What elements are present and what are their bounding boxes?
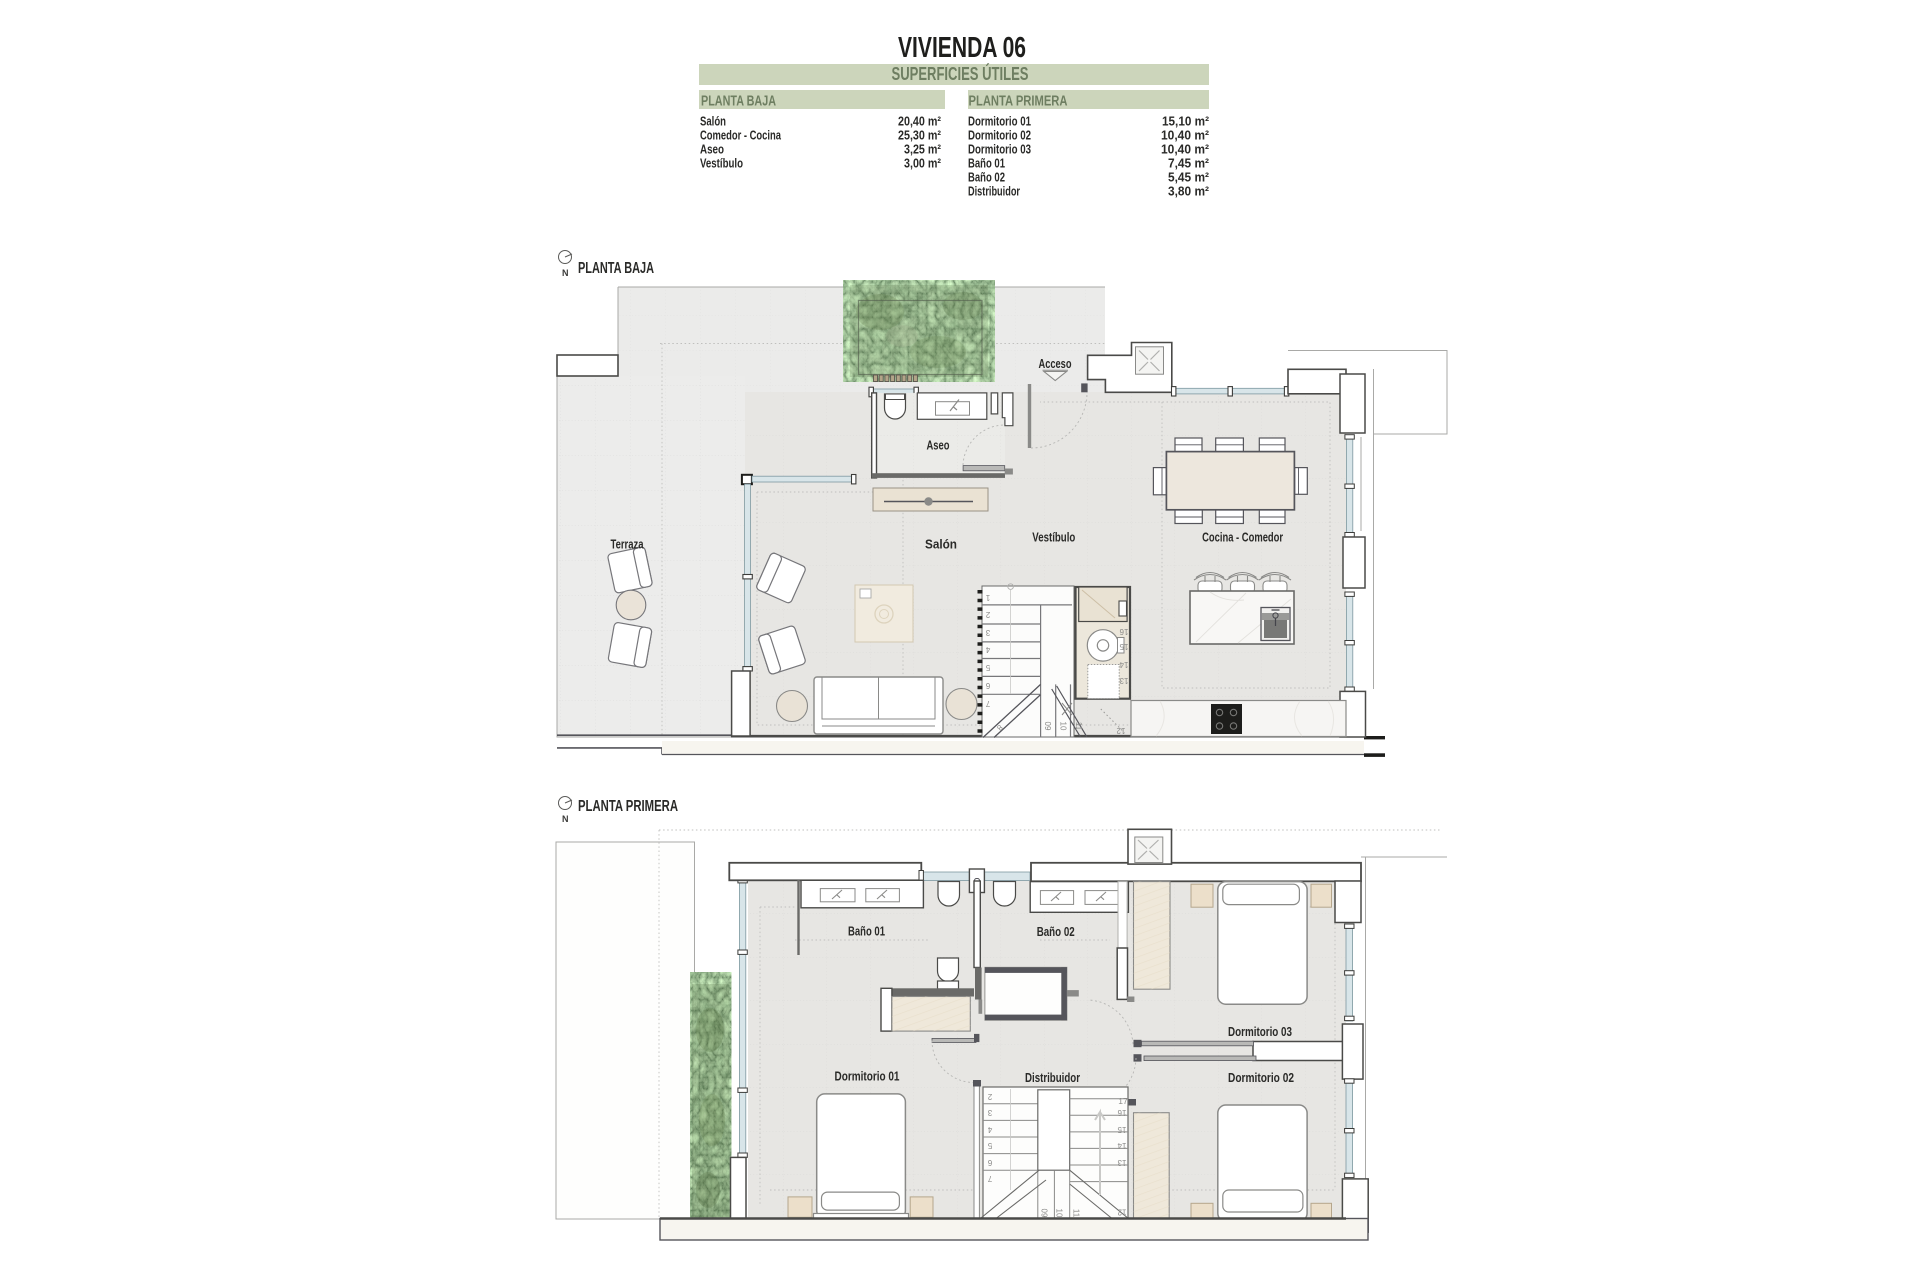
svg-text:Cocina - Comedor: Cocina - Comedor xyxy=(1202,530,1283,545)
svg-text:PLANTA PRIMERA: PLANTA PRIMERA xyxy=(578,798,678,815)
svg-text:3,25 m²: 3,25 m² xyxy=(904,142,942,157)
svg-text:6: 6 xyxy=(985,681,990,690)
svg-text:6: 6 xyxy=(987,1158,992,1167)
svg-text:Vestíbulo: Vestíbulo xyxy=(1032,530,1075,545)
svg-text:15: 15 xyxy=(1117,1125,1126,1134)
svg-text:7: 7 xyxy=(987,1174,992,1183)
svg-text:Baño 02: Baño 02 xyxy=(1037,924,1075,939)
svg-text:16: 16 xyxy=(1119,627,1128,636)
svg-text:SUPERFICIES ÚTILES: SUPERFICIES ÚTILES xyxy=(892,63,1029,84)
svg-text:Dormitorio 01: Dormitorio 01 xyxy=(968,114,1031,129)
svg-text:10: 10 xyxy=(1059,722,1068,731)
svg-text:5: 5 xyxy=(985,663,990,672)
svg-text:PLANTA BAJA: PLANTA BAJA xyxy=(578,260,654,277)
svg-text:N: N xyxy=(562,814,569,824)
svg-text:Baño 01: Baño 01 xyxy=(968,156,1005,171)
svg-text:16: 16 xyxy=(1117,1108,1126,1117)
svg-text:PLANTA BAJA: PLANTA BAJA xyxy=(701,93,776,110)
svg-text:Vestíbulo: Vestíbulo xyxy=(700,156,743,171)
svg-text:11: 11 xyxy=(1071,1209,1080,1218)
svg-text:PLANTA PRIMERA: PLANTA PRIMERA xyxy=(969,93,1068,110)
svg-text:10: 10 xyxy=(1055,1209,1064,1218)
svg-text:2: 2 xyxy=(985,610,990,619)
svg-text:Salón: Salón xyxy=(925,536,957,551)
svg-text:7,45 m²: 7,45 m² xyxy=(1168,156,1210,171)
svg-text:09: 09 xyxy=(1040,1209,1049,1218)
svg-text:09: 09 xyxy=(1043,722,1052,731)
svg-text:Distribuidor: Distribuidor xyxy=(1025,1070,1080,1085)
svg-text:12: 12 xyxy=(1116,726,1125,735)
svg-text:15: 15 xyxy=(1119,642,1128,651)
svg-text:4: 4 xyxy=(987,1125,992,1134)
svg-text:12: 12 xyxy=(1117,1208,1126,1217)
svg-text:Acceso: Acceso xyxy=(1039,356,1072,371)
svg-text:10,40 m²: 10,40 m² xyxy=(1161,128,1210,143)
svg-text:20,40 m²: 20,40 m² xyxy=(898,114,942,129)
svg-text:Terraza: Terraza xyxy=(611,536,645,551)
svg-text:Dormitorio 01: Dormitorio 01 xyxy=(835,1069,900,1084)
svg-text:VIVIENDA 06: VIVIENDA 06 xyxy=(898,32,1026,64)
svg-text:5,45 m²: 5,45 m² xyxy=(1168,170,1210,185)
svg-text:15,10 m²: 15,10 m² xyxy=(1162,114,1210,129)
svg-text:Salón: Salón xyxy=(700,114,726,129)
svg-text:4: 4 xyxy=(985,645,990,654)
svg-text:3,80 m²: 3,80 m² xyxy=(1168,184,1210,199)
svg-text:Dormitorio 02: Dormitorio 02 xyxy=(968,128,1031,143)
svg-text:3: 3 xyxy=(985,628,990,637)
svg-text:10,40 m²: 10,40 m² xyxy=(1161,142,1210,157)
svg-text:Dormitorio 03: Dormitorio 03 xyxy=(968,142,1031,157)
svg-text:Baño 01: Baño 01 xyxy=(848,923,885,938)
svg-text:Aseo: Aseo xyxy=(700,142,724,157)
svg-text:14: 14 xyxy=(1119,660,1128,669)
svg-text:25,30 m²: 25,30 m² xyxy=(898,128,942,143)
svg-text:17: 17 xyxy=(1118,1096,1128,1106)
svg-text:13: 13 xyxy=(1119,676,1128,685)
svg-text:Comedor - Cocina: Comedor - Cocina xyxy=(700,128,782,143)
svg-text:1: 1 xyxy=(985,593,990,602)
svg-text:7: 7 xyxy=(985,699,990,708)
svg-text:14: 14 xyxy=(1117,1141,1126,1150)
svg-text:3,00 m²: 3,00 m² xyxy=(904,156,942,171)
svg-text:3: 3 xyxy=(987,1108,992,1117)
svg-text:13: 13 xyxy=(1117,1158,1126,1167)
svg-text:Distribuidor: Distribuidor xyxy=(968,184,1020,199)
svg-text:5: 5 xyxy=(987,1141,992,1150)
svg-text:Aseo: Aseo xyxy=(927,438,950,453)
svg-text:Dormitorio 03: Dormitorio 03 xyxy=(1228,1024,1292,1039)
svg-text:2: 2 xyxy=(987,1092,992,1101)
svg-text:Baño 02: Baño 02 xyxy=(968,170,1005,185)
svg-text:Dormitorio 02: Dormitorio 02 xyxy=(1228,1070,1294,1085)
svg-text:11: 11 xyxy=(1074,722,1083,731)
svg-text:N: N xyxy=(562,268,569,278)
